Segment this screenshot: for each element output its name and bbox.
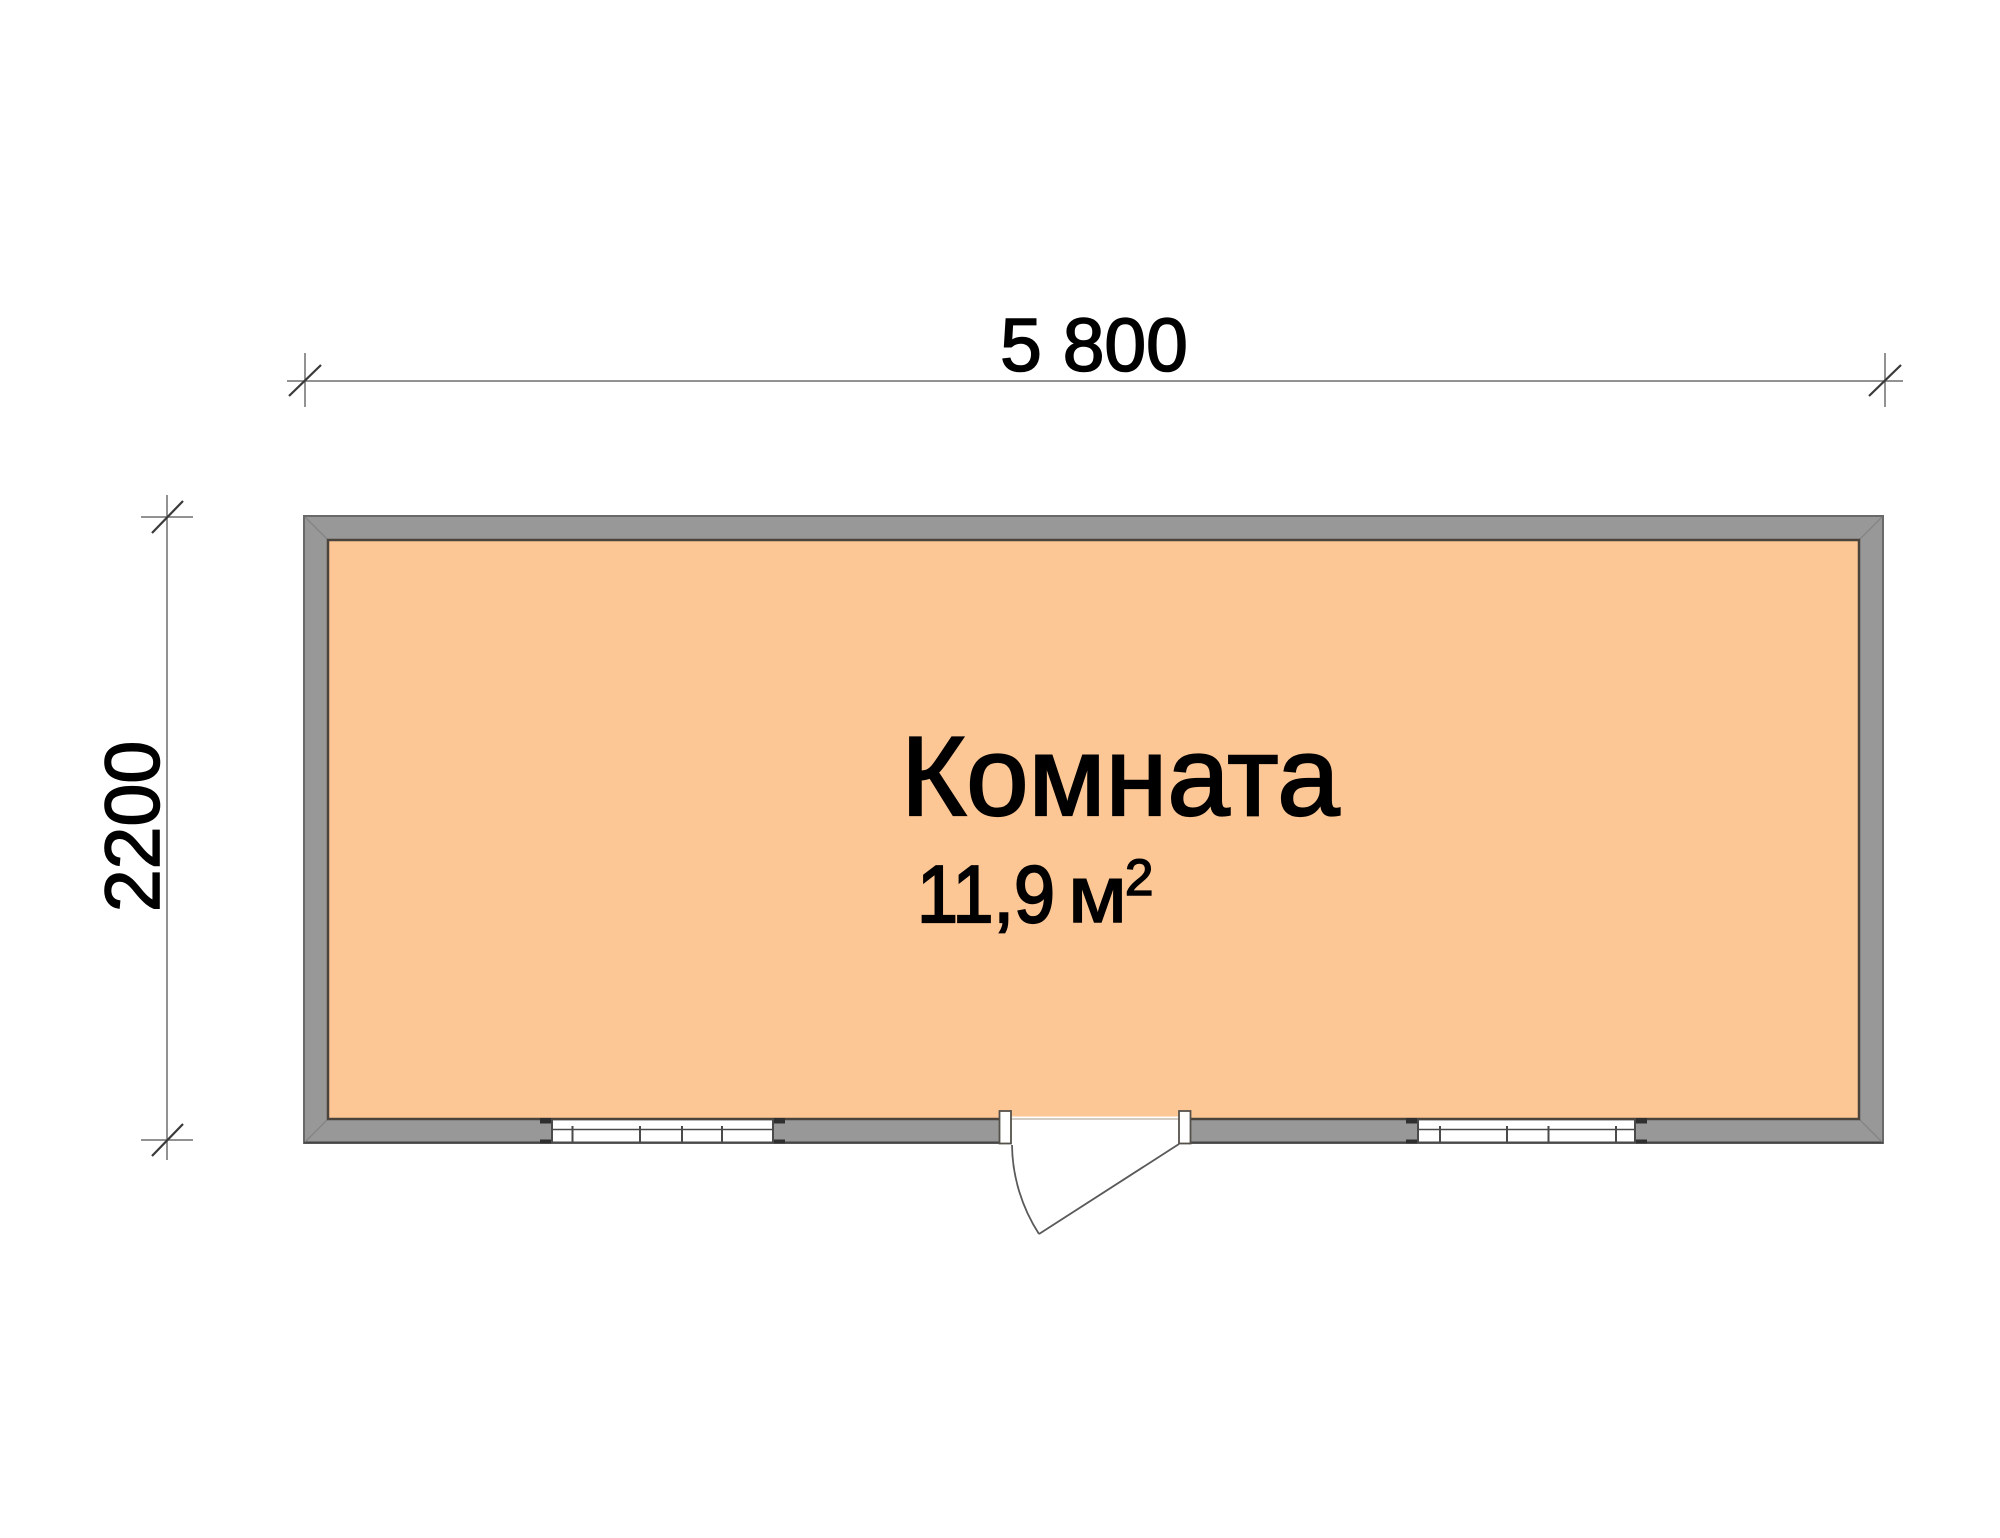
svg-text:м: м [1068, 848, 1127, 939]
svg-text:5 800: 5 800 [1000, 303, 1188, 387]
svg-text:2200: 2200 [90, 741, 176, 912]
svg-text:2: 2 [1125, 849, 1153, 906]
svg-text:Комната: Комната [901, 714, 1340, 839]
svg-text:11,9: 11,9 [917, 850, 1055, 940]
